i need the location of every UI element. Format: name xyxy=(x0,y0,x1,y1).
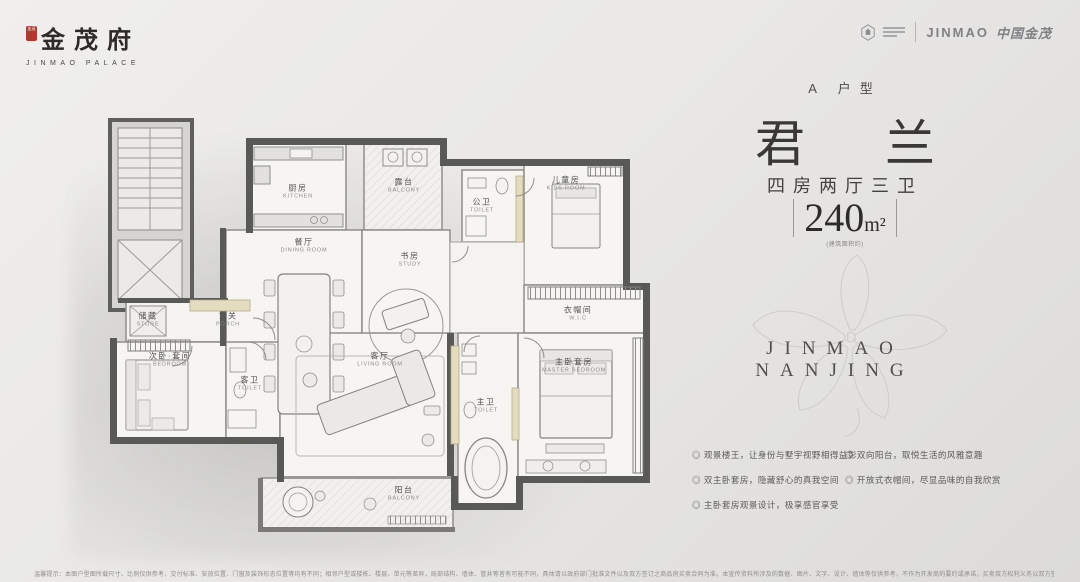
unit-type-label: A 户型 xyxy=(760,78,930,97)
logo-divider xyxy=(915,22,916,42)
crest-icon xyxy=(860,24,876,41)
feature-item: ◎ 双主卧套房，隐藏舒心的真我空间 xyxy=(692,474,857,486)
brand-subtitle: JINMAO PALACE xyxy=(26,60,140,67)
unit-name-char-2: 兰 xyxy=(885,104,935,176)
brand-logo: 金茂 金茂府 JINMAO PALACE xyxy=(26,20,140,67)
area-unit: m² xyxy=(864,214,886,236)
area-left-bar xyxy=(793,199,794,237)
unit-name: 君 兰 xyxy=(755,104,935,176)
feature-item: ◎ 双向阳台，取悦生活的风雅意趣 xyxy=(845,449,1001,461)
partner-text-marks xyxy=(883,27,905,37)
feature-item: ◎ 观景楼王，让身份与墅宇视野相得益彰 xyxy=(692,449,857,461)
jinmao-chinese-wordmark: 中国金茂 xyxy=(996,23,1052,42)
disclaimer-text: 温馨提示：本图户型图所载尺寸、比例仅供参考，交付标准、安放位置、门窗及装饰形态位… xyxy=(34,569,1054,578)
jinmao-wordmark: JINMAO xyxy=(926,25,989,40)
area-note: (建筑面积约) xyxy=(745,239,945,248)
feature-list-right: ◎ 双向阳台，取悦生活的风雅意趣 ◎ 开放式衣帽间，尽显品味的自我欣赏 xyxy=(845,449,1001,499)
floorplan: 厨房KITCHEN 露台BALCONY 餐厅DINING ROOM 书房STUD… xyxy=(88,88,658,558)
partner-logos: JINMAO 中国金茂 xyxy=(860,22,1052,42)
floorplan-drawing xyxy=(88,88,658,558)
area-right-bar xyxy=(896,199,897,237)
poster: 金茂 金茂府 JINMAO PALACE JINMAO 中国金茂 A 户型 君 … xyxy=(0,0,1080,582)
feature-item: ◎ 开放式衣帽间，尽显品味的自我欣赏 xyxy=(845,474,1001,486)
feature-item: ◎ 主卧套房观景设计，极享感官享受 xyxy=(692,499,857,511)
feature-list-left: ◎ 观景楼王，让身份与墅宇视野相得益彰 ◎ 双主卧套房，隐藏舒心的真我空间 ◎ … xyxy=(692,449,857,524)
watermark-text: JINMAO NANJING xyxy=(705,338,965,382)
area-value: 240 xyxy=(804,195,864,240)
brand-name: 金茂府 xyxy=(41,20,140,55)
unit-area: 240m² (建筑面积约) xyxy=(745,198,945,248)
unit-name-char-1: 君 xyxy=(755,104,805,176)
red-seal-icon: 金茂 xyxy=(26,26,37,41)
